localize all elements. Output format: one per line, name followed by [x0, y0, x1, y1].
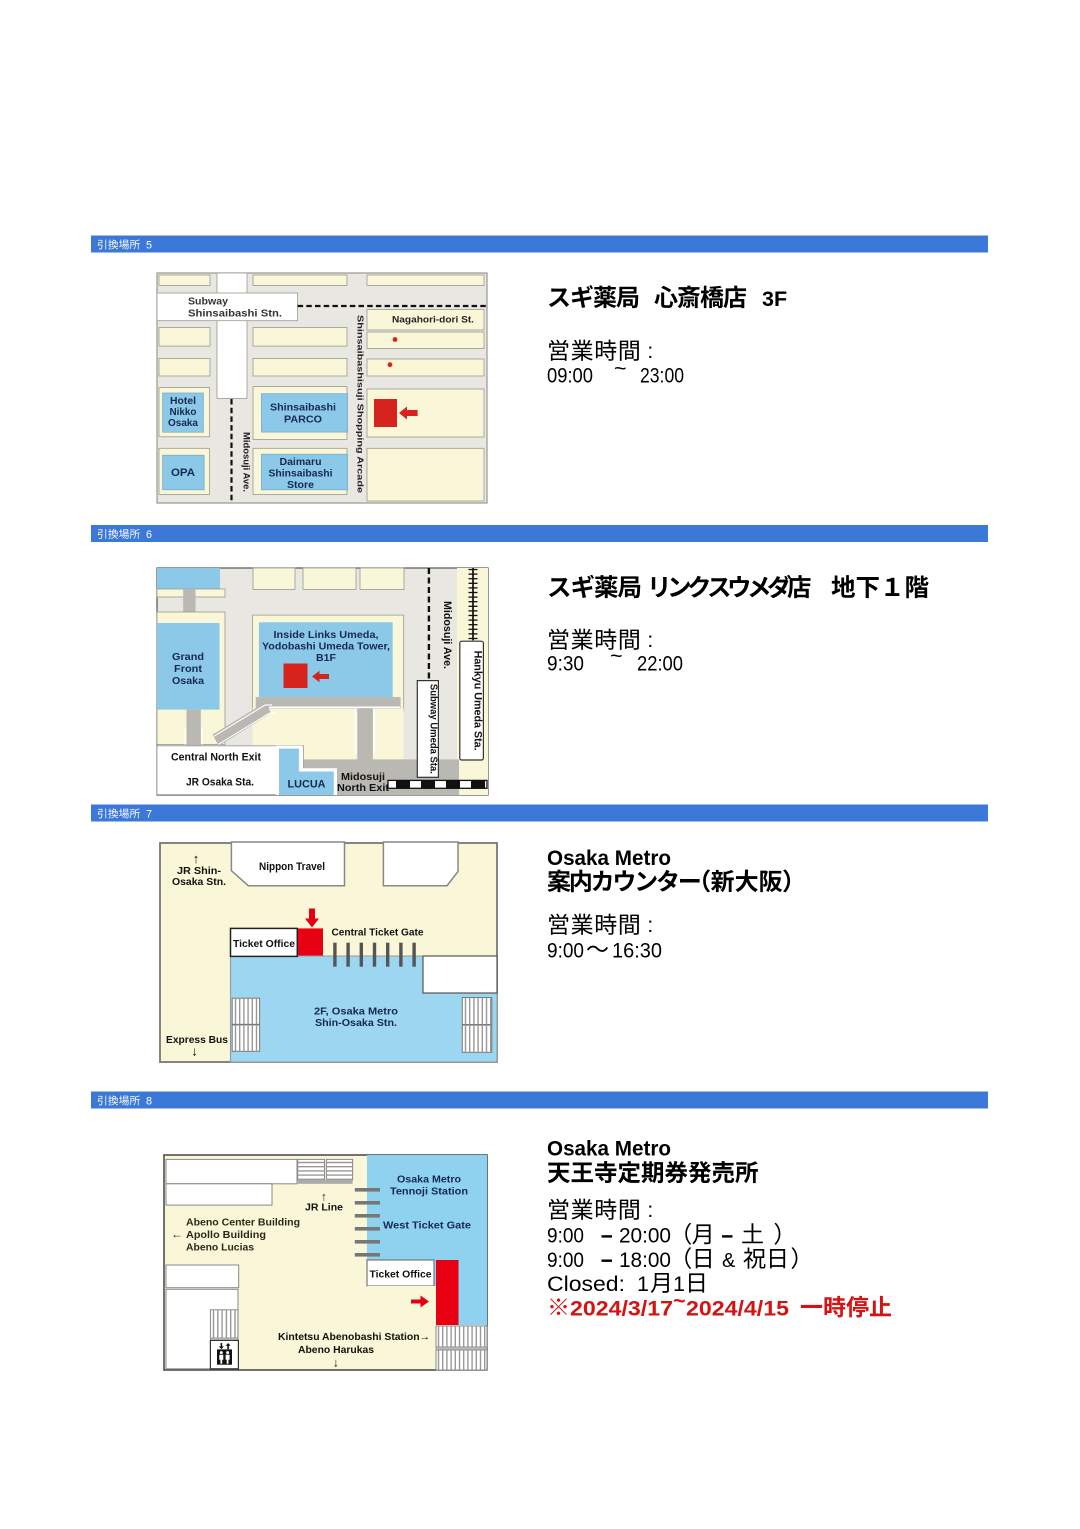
svg-text:9:00: 9:00 [547, 1224, 584, 1248]
svg-text:←: ← [171, 1227, 183, 1241]
svg-text:Grand: Grand [172, 651, 204, 663]
svg-text:Midosuji Ave.: Midosuji Ave. [441, 601, 453, 669]
svg-text:Abeno Lucias: Abeno Lucias [186, 1242, 254, 1254]
svg-text:Osaka Metro: Osaka Metro [397, 1174, 461, 1186]
svg-text:Ticket Office: Ticket Office [233, 938, 295, 950]
svg-text:Nagahori-dori St.: Nagahori-dori St. [392, 315, 474, 326]
svg-text:&: & [722, 1250, 736, 1272]
svg-text::: : [647, 1199, 653, 1222]
svg-text:Shin-Osaka Stn.: Shin-Osaka Stn. [315, 1017, 397, 1029]
svg-text:8: 8 [146, 1096, 152, 1108]
svg-text:Kintetsu Abenobashi Station→: Kintetsu Abenobashi Station→ [278, 1331, 430, 1343]
svg-text:↓: ↓ [191, 1044, 198, 1059]
svg-text:Central Ticket Gate: Central Ticket Gate [332, 928, 424, 939]
svg-text:5: 5 [146, 240, 152, 252]
svg-text:JR Osaka Sta.: JR Osaka Sta. [186, 777, 254, 789]
svg-text:Front: Front [174, 663, 203, 675]
svg-text:West Ticket Gate: West Ticket Gate [383, 1220, 471, 1232]
svg-text:09:00: 09:00 [547, 364, 593, 388]
svg-text:Tennoji Station: Tennoji Station [390, 1186, 468, 1198]
svg-text:Shinsaibashisuji Shopping Arca: Shinsaibashisuji Shopping Arcade [356, 315, 365, 494]
svg-text:Hotel: Hotel [170, 396, 196, 407]
svg-text::: : [647, 914, 653, 937]
svg-text:Inside Links Umeda,: Inside Links Umeda, [274, 629, 379, 641]
svg-text:16:30: 16:30 [612, 939, 662, 963]
svg-text:18:00: 18:00 [619, 1248, 671, 1272]
svg-text:Closed:: Closed: [547, 1272, 625, 1296]
svg-text:Shinsaibashi: Shinsaibashi [269, 469, 333, 480]
svg-text:9:30: 9:30 [547, 652, 584, 676]
svg-text:Hankyu Umeda Sta.: Hankyu Umeda Sta. [472, 651, 484, 751]
svg-text:Subway: Subway [188, 296, 228, 308]
svg-text:LUCUA: LUCUA [288, 779, 326, 791]
svg-text:~: ~ [610, 644, 623, 668]
svg-text:Daimaru: Daimaru [280, 457, 322, 468]
svg-text:PARCO: PARCO [284, 414, 322, 426]
svg-text:Osaka: Osaka [168, 418, 199, 429]
svg-text:20:00: 20:00 [619, 1224, 671, 1248]
svg-text::: : [647, 340, 653, 363]
svg-text:JR Shin-: JR Shin- [177, 866, 221, 877]
svg-text:Osaka Stn.: Osaka Stn. [172, 877, 226, 888]
svg-text:1: 1 [637, 1272, 649, 1296]
svg-text:22:00: 22:00 [637, 652, 683, 676]
svg-text:Central North Exit: Central North Exit [171, 752, 261, 764]
svg-text:Nippon Travel: Nippon Travel [259, 861, 325, 873]
svg-text:2024/4/15: 2024/4/15 [686, 1296, 789, 1320]
svg-text:Store: Store [287, 480, 314, 491]
svg-text::: : [647, 629, 653, 652]
svg-text:~: ~ [614, 357, 627, 381]
svg-text:23:00: 23:00 [640, 364, 684, 388]
svg-text:OPA: OPA [171, 467, 195, 479]
svg-text:2024/3/17: 2024/3/17 [570, 1296, 673, 1320]
svg-text:Abeno Center Building: Abeno Center Building [186, 1217, 300, 1229]
svg-text:Nikko: Nikko [170, 407, 197, 418]
svg-text:Ticket Office: Ticket Office [370, 1269, 432, 1281]
svg-text:B1F: B1F [316, 652, 337, 664]
svg-text:North Exit: North Exit [337, 782, 390, 794]
svg-text:Abeno Harukas: Abeno Harukas [298, 1344, 374, 1356]
svg-text:Osaka Metro: Osaka Metro [547, 1137, 671, 1161]
svg-text:Subway Umeda Sta.: Subway Umeda Sta. [428, 684, 440, 774]
svg-text:6: 6 [146, 529, 152, 541]
svg-text:↑: ↑ [193, 851, 200, 866]
svg-text:7: 7 [146, 809, 152, 821]
svg-text:Apollo Building: Apollo Building [186, 1229, 266, 1241]
svg-text:9:00: 9:00 [547, 1248, 584, 1272]
svg-text:~: ~ [673, 1289, 686, 1313]
svg-text:Yodobashi Umeda Tower,: Yodobashi Umeda Tower, [262, 641, 390, 653]
svg-text:Shinsaibashi Stn.: Shinsaibashi Stn. [188, 308, 282, 320]
svg-text:3F: 3F [762, 287, 787, 311]
svg-text:Osaka: Osaka [172, 675, 204, 687]
svg-text:JR Line: JR Line [305, 1202, 343, 1214]
svg-text:Shinsaibashi: Shinsaibashi [270, 402, 336, 414]
svg-text:Midosuji Ave.: Midosuji Ave. [242, 432, 252, 492]
svg-text:9:00: 9:00 [547, 939, 584, 963]
svg-text:↓: ↓ [333, 1356, 339, 1370]
svg-text:2F, Osaka Metro: 2F, Osaka Metro [314, 1006, 398, 1018]
svg-text:Osaka Metro: Osaka Metro [547, 846, 671, 870]
